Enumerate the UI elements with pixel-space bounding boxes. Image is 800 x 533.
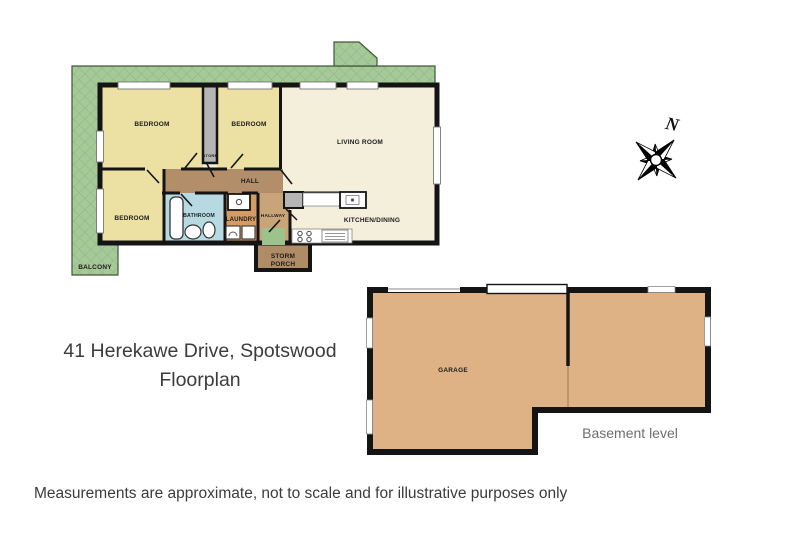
washing-machine xyxy=(228,194,250,210)
bathroom-sink xyxy=(185,225,201,239)
entry-mat xyxy=(262,228,285,245)
basement-window-right xyxy=(705,317,711,346)
floorplan-page: BEDROOM BEDROOM STORE LIVING ROOM HALL B… xyxy=(0,0,800,533)
plan-title-line2: Floorplan xyxy=(30,366,370,395)
window-bedroom1-left xyxy=(97,131,104,162)
label-laundry: LAUNDRY xyxy=(226,217,257,223)
balcony-step-notch xyxy=(334,42,377,66)
window-living-top-2 xyxy=(347,82,378,89)
kitchen-sink-drain xyxy=(351,198,354,201)
room-store-closet xyxy=(203,85,217,163)
compass-north-label: N xyxy=(663,113,682,136)
label-bedroom-top-middle: BEDROOM xyxy=(231,121,266,128)
laundry-cabinet xyxy=(242,226,255,239)
label-living-room: LIVING ROOM xyxy=(337,139,383,146)
bathtub xyxy=(170,197,183,239)
room-bedroom-bottom-left xyxy=(100,169,164,243)
label-storm-porch-1: STORM xyxy=(271,253,295,260)
kitchen-corner-unit xyxy=(284,192,303,208)
label-kitchen-dining: KITCHEN/DINING xyxy=(344,217,400,224)
basement-window-top-right xyxy=(648,287,675,293)
label-garage: GARAGE xyxy=(438,367,468,374)
label-storm-porch-2: PORCH xyxy=(271,261,296,268)
plan-title-line1: 41 Herekawe Drive, Spotswood xyxy=(30,337,370,366)
window-bedroom3-left xyxy=(97,189,104,233)
dishwasher xyxy=(322,230,348,242)
label-balcony: BALCONY xyxy=(78,264,112,271)
label-hallway: HALLWAY xyxy=(261,213,286,219)
label-hall: HALL xyxy=(241,178,259,185)
basement-window-left-2 xyxy=(367,400,373,434)
window-right-wall xyxy=(434,127,441,184)
kitchen-counter xyxy=(303,193,340,206)
label-bedroom-bottom-left: BEDROOM xyxy=(114,215,149,222)
basement-window-top xyxy=(487,285,567,294)
label-store: STORE xyxy=(203,153,218,158)
room-hall xyxy=(161,169,283,193)
laundry-tub xyxy=(226,226,240,239)
basement-plan: GARAGE Basement level xyxy=(367,285,711,453)
compass-rose: N xyxy=(618,113,694,198)
compass-star xyxy=(618,122,694,198)
toilet xyxy=(203,222,215,238)
label-basement-level: Basement level xyxy=(582,425,678,441)
window-bedroom1-top xyxy=(118,82,170,89)
label-bathroom: BATHROOM xyxy=(183,213,215,219)
plan-title: 41 Herekawe Drive, Spotswood Floorplan xyxy=(30,337,370,395)
window-bedroom2-top xyxy=(228,82,272,89)
label-bedroom-top-left: BEDROOM xyxy=(134,121,169,128)
disclaimer-text: Measurements are approximate, not to sca… xyxy=(34,485,567,503)
floorplan-drawing: BEDROOM BEDROOM STORE LIVING ROOM HALL B… xyxy=(0,0,800,533)
window-living-top-1 xyxy=(300,82,336,89)
